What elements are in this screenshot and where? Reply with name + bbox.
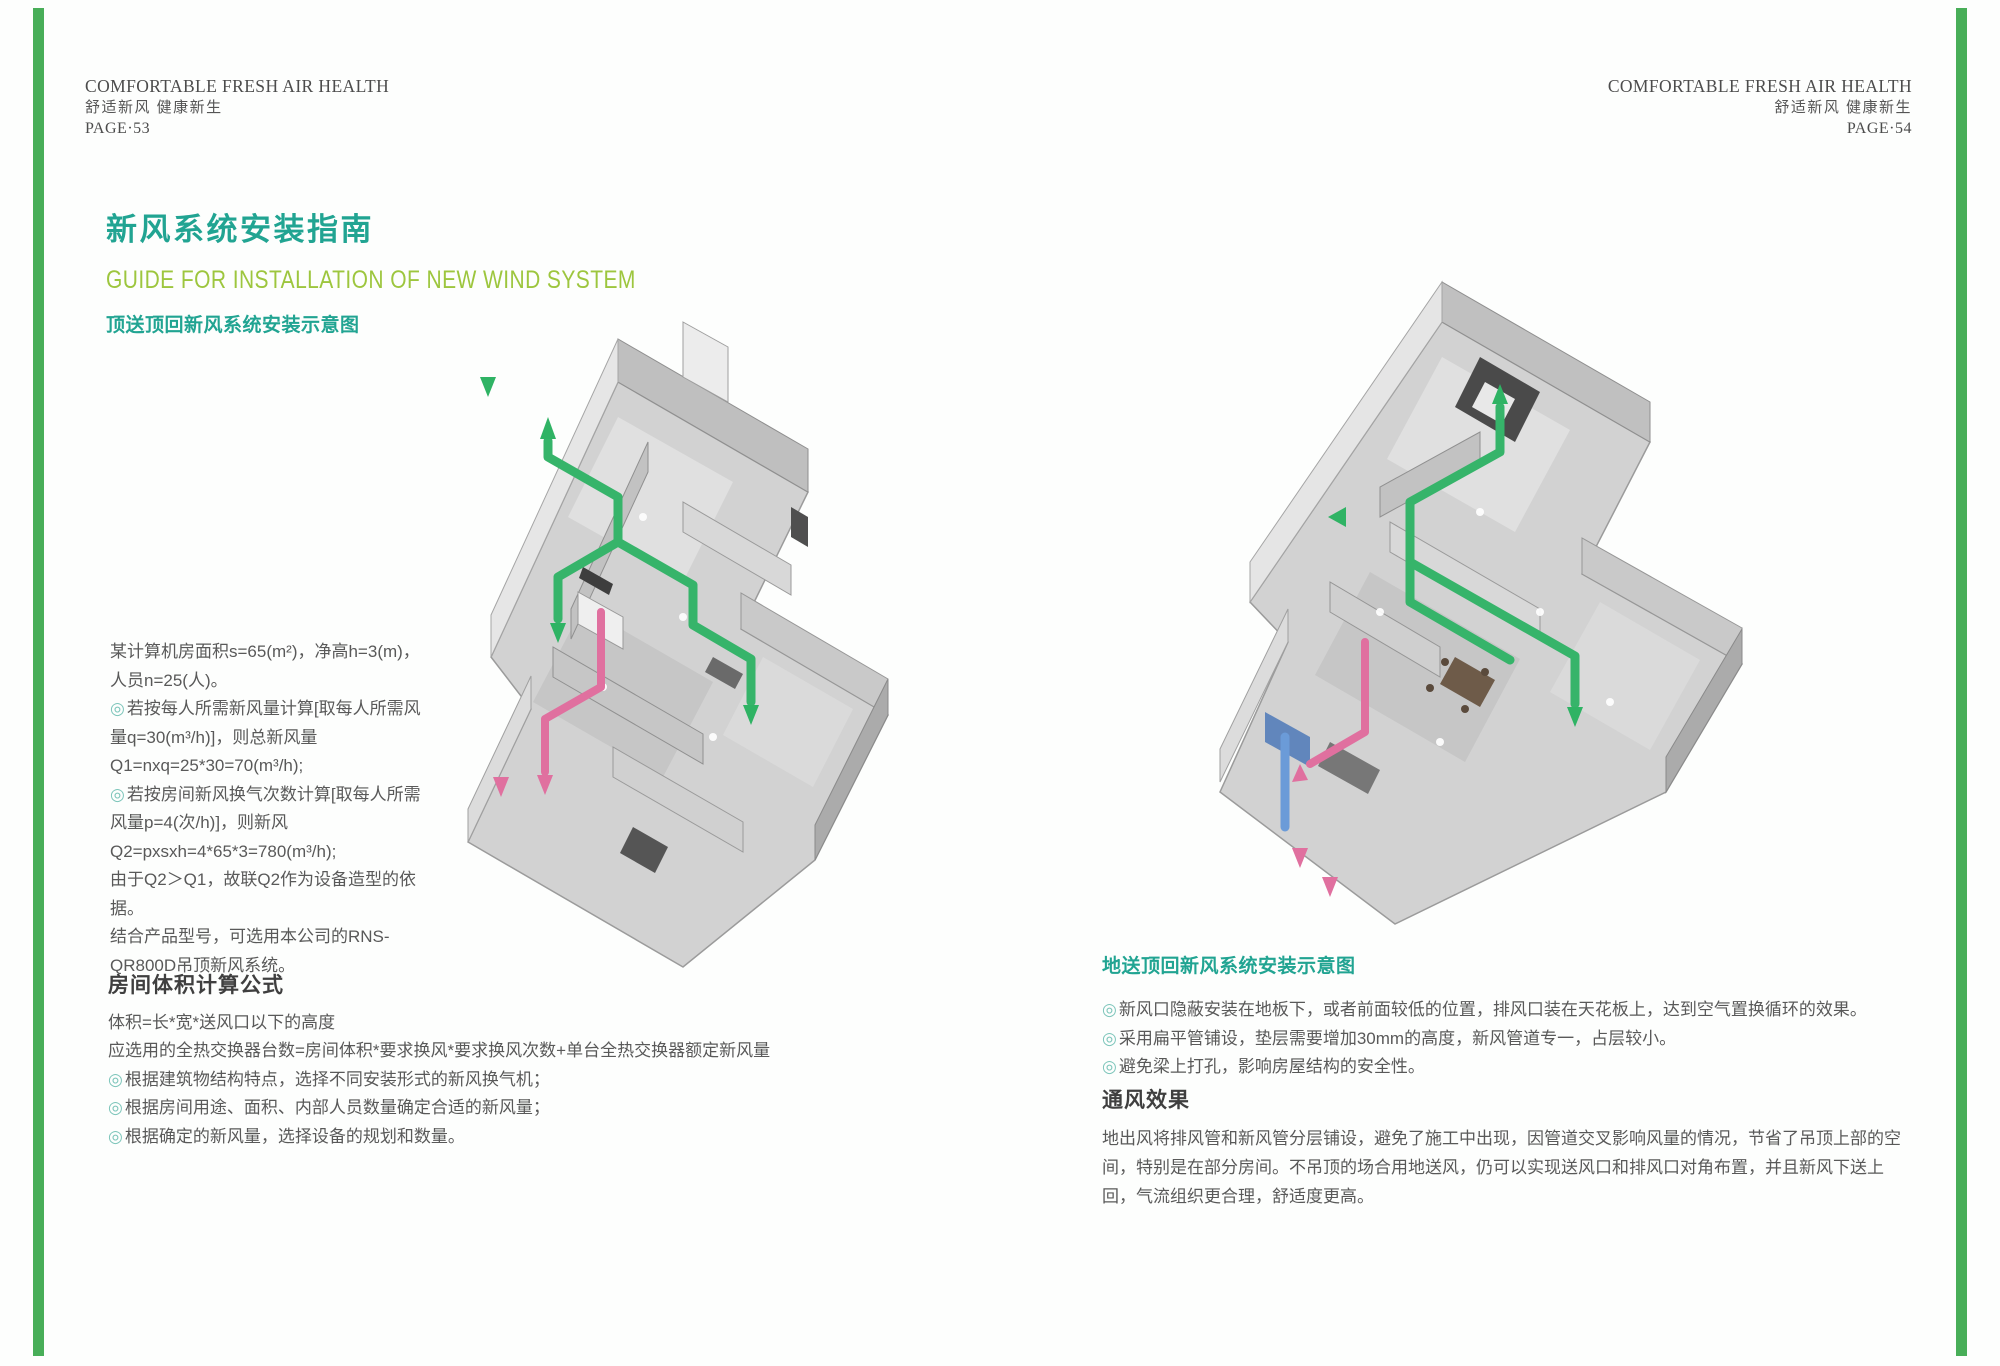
bullet-ring-icon: ◎ <box>110 785 125 804</box>
right-diagram-label: 地送顶回新风系统安装示意图 <box>1102 951 1356 978</box>
isometric-render-top-supply <box>383 312 915 972</box>
isometric-render-floor-supply <box>1180 272 1780 962</box>
calc-text: 某计算机房面积s=65(m²)，净高h=3(m)，人员n=25(人)。 <box>110 642 420 690</box>
header-tagline-cn: 舒适新风 健康新生 <box>85 97 389 118</box>
page-subtitle-en: GUIDE FOR INSTALLATION OF NEW WIND SYSTE… <box>106 266 636 295</box>
formula-text: 应选用的全热交换器台数=房间体积*要求换风*要求换风次数+单台全热交换器额定新风… <box>108 1041 770 1060</box>
calc-paragraph: ◎若按房间新风换气次数计算[取每人所需风量p=4(次/h)]，则新风Q2=pxs… <box>110 781 434 867</box>
note-bullet: ◎新风口隐蔽安装在地板下，或者前面较低的位置，排风口装在天花板上，达到空气置换循… <box>1102 996 1917 1025</box>
bullet-ring-icon: ◎ <box>1102 1000 1117 1019</box>
bullet-ring-icon: ◎ <box>108 1098 123 1117</box>
bullet-ring-icon: ◎ <box>108 1127 123 1146</box>
formula-bullet: ◎根据确定的新风量，选择设备的规划和数量。 <box>108 1123 968 1152</box>
page-number-right: PAGE·54 <box>1608 118 1912 139</box>
installation-notes-block: ◎新风口隐蔽安装在地板下，或者前面较低的位置，排风口装在天花板上，达到空气置换循… <box>1102 996 1917 1082</box>
calc-text: 若按每人所需新风量计算[取每人所需风量q=30(m³/h)]，则总新风量Q1=n… <box>110 699 421 775</box>
bullet-ring-icon: ◎ <box>1102 1057 1117 1076</box>
left-page-header: COMFORTABLE FRESH AIR HEALTH 舒适新风 健康新生 P… <box>85 76 389 139</box>
formula-bullet: ◎根据建筑物结构特点，选择不同安装形式的新风换气机； <box>108 1066 968 1095</box>
bullet-ring-icon: ◎ <box>110 699 125 718</box>
calc-paragraph: ◎若按每人所需新风量计算[取每人所需风量q=30(m³/h)]，则总新风量Q1=… <box>110 695 434 781</box>
header-tagline-cn: 舒适新风 健康新生 <box>1608 97 1912 118</box>
formula-line: 体积=长*宽*送风口以下的高度 <box>108 1009 968 1038</box>
calc-text: 由于Q2＞Q1，故联Q2作为设备造型的依据。 <box>110 870 416 918</box>
bullet-ring-icon: ◎ <box>1102 1029 1117 1048</box>
calc-paragraph: 某计算机房面积s=65(m²)，净高h=3(m)，人员n=25(人)。 <box>110 638 434 695</box>
volume-formula-section: 房间体积计算公式 体积=长*宽*送风口以下的高度 应选用的全热交换器台数=房间体… <box>108 972 968 1151</box>
page-number-left: PAGE·53 <box>85 118 389 139</box>
note-bullet: ◎避免梁上打孔，影响房屋结构的安全性。 <box>1102 1053 1917 1082</box>
formula-text: 根据建筑物结构特点，选择不同安装形式的新风换气机； <box>125 1070 550 1089</box>
left-edge-accent-bar <box>33 8 44 1356</box>
bullet-ring-icon: ◎ <box>108 1070 123 1089</box>
left-diagram-label: 顶送顶回新风系统安装示意图 <box>106 310 360 337</box>
note-bullet: ◎采用扁平管铺设，垫层需要增加30mm的高度，新风管道专一，占层较小。 <box>1102 1025 1917 1054</box>
calc-paragraph: 由于Q2＞Q1，故联Q2作为设备造型的依据。 <box>110 866 434 923</box>
header-tagline-en: COMFORTABLE FRESH AIR HEALTH <box>85 76 389 97</box>
brochure-spread: COMFORTABLE FRESH AIR HEALTH 舒适新风 健康新生 P… <box>0 0 2000 1366</box>
formula-text: 根据确定的新风量，选择设备的规划和数量。 <box>125 1127 465 1146</box>
formula-text: 根据房间用途、面积、内部人员数量确定合适的新风量； <box>125 1098 550 1117</box>
calc-text: 结合产品型号，可选用本公司的RNS-QR800D吊顶新风系统。 <box>110 927 390 975</box>
formula-line: 应选用的全热交换器台数=房间体积*要求换风*要求换风次数+单台全热交换器额定新风… <box>108 1037 968 1066</box>
note-text: 避免梁上打孔，影响房屋结构的安全性。 <box>1119 1057 1425 1076</box>
formula-bullet: ◎根据房间用途、面积、内部人员数量确定合适的新风量； <box>108 1094 968 1123</box>
header-tagline-en: COMFORTABLE FRESH AIR HEALTH <box>1608 76 1912 97</box>
calc-text: 若按房间新风换气次数计算[取每人所需风量p=4(次/h)]，则新风Q2=pxsx… <box>110 785 421 861</box>
ventilation-effect-paragraph: 地出风将排风管和新风管分层铺设，避免了施工中出现，因管道交叉影响风量的情况，节省… <box>1102 1124 1917 1211</box>
ventilation-effect-section: 通风效果 地出风将排风管和新风管分层铺设，避免了施工中出现，因管道交叉影响风量的… <box>1102 1086 1917 1211</box>
note-text: 新风口隐蔽安装在地板下，或者前面较低的位置，排风口装在天花板上，达到空气置换循环… <box>1119 1000 1867 1019</box>
right-page-header: COMFORTABLE FRESH AIR HEALTH 舒适新风 健康新生 P… <box>1608 76 1912 139</box>
right-edge-accent-bar <box>1956 8 1967 1356</box>
calculation-text-block: 某计算机房面积s=65(m²)，净高h=3(m)，人员n=25(人)。 ◎若按每… <box>110 638 434 980</box>
volume-formula-heading: 房间体积计算公式 <box>108 972 968 1001</box>
note-text: 采用扁平管铺设，垫层需要增加30mm的高度，新风管道专一，占层较小。 <box>1119 1029 1676 1048</box>
page-title: 新风系统安装指南 <box>106 204 374 249</box>
ventilation-effect-heading: 通风效果 <box>1102 1086 1917 1115</box>
formula-text: 体积=长*宽*送风口以下的高度 <box>108 1013 335 1032</box>
